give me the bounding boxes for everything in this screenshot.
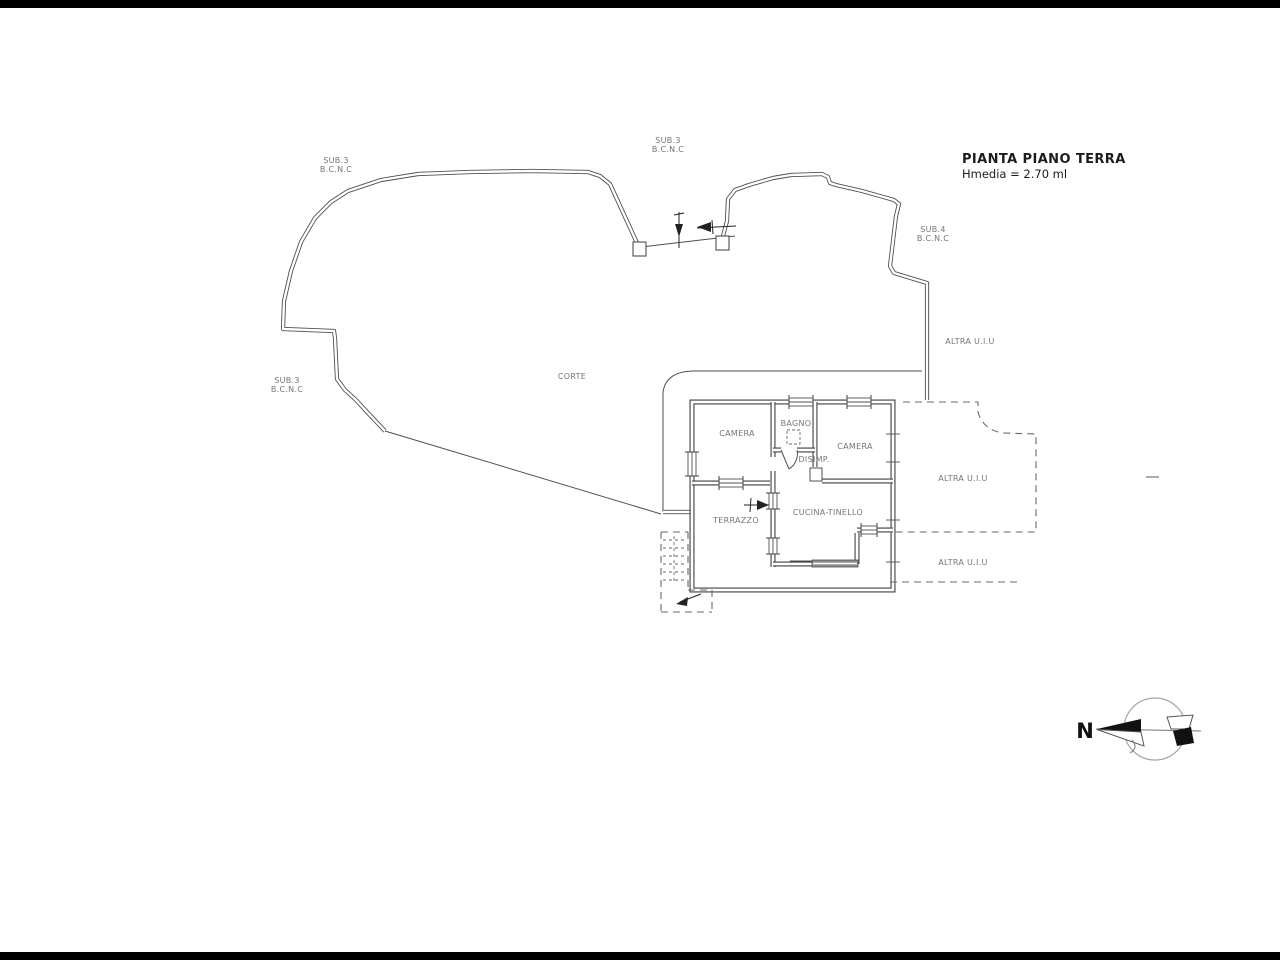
adjacent-area-upper [890, 402, 1036, 532]
staircase-steps [663, 536, 686, 584]
label-sub3-top-center-id: SUB.3 [655, 136, 681, 145]
gate-post-left [633, 242, 646, 256]
window-camera-left-side [685, 452, 699, 476]
gate-post-right [716, 236, 729, 250]
window-bagno-top [789, 395, 813, 409]
entrance-arrow-horizontal [697, 220, 736, 234]
plan-subtitle: Hmedia = 2.70 ml [962, 167, 1067, 181]
window-kitchen-upper [766, 493, 780, 509]
label-altra-middle: ALTRA U.I.U [938, 474, 987, 483]
door-leaf-bagno [781, 450, 789, 469]
compass-flag-outline [1167, 715, 1193, 729]
label-sub4-id: SUB.4 [920, 225, 946, 234]
label-corte: CORTE [558, 372, 586, 381]
terrace-entrance-arrow [744, 498, 769, 512]
label-sub3-top-center-class: B.C.N.C [652, 145, 684, 154]
staircase-arrow [676, 594, 701, 606]
north-label: N [1076, 719, 1094, 743]
label-bagno: BAGNO [781, 419, 812, 428]
courtyard-divider-line [663, 371, 922, 512]
compass: N [1076, 698, 1201, 760]
window-camera-right-top [847, 395, 871, 409]
plan-title: PIANTA PIANO TERRA [962, 152, 1126, 167]
entrance-gate [633, 212, 736, 256]
label-sub3-left-id: SUB.3 [274, 376, 300, 385]
courtyard-boundary [283, 171, 927, 514]
label-disimpegno: DISIMP. [798, 455, 829, 464]
window-kitchen-right [861, 523, 877, 537]
label-sub3-top-left-class: B.C.N.C [320, 165, 352, 174]
door-arc-bagno [789, 450, 797, 469]
floor-plan: N PIANTA PIANO TERRA Hmedia = 2.70 ml SU… [0, 0, 1280, 960]
label-sub3-left-class: B.C.N.C [271, 385, 303, 394]
label-camera-left: CAMERA [719, 429, 755, 438]
label-altra-upper: ALTRA U.I.U [945, 337, 994, 346]
staircase [661, 532, 712, 612]
bagno-fixture [787, 430, 800, 444]
plan-labels: PIANTA PIANO TERRA Hmedia = 2.70 ml SUB.… [271, 136, 1126, 567]
label-sub4-class: B.C.N.C [917, 234, 949, 243]
dashed-adjacent-areas [890, 402, 1159, 582]
courtyard-diagonal-edge [385, 431, 661, 514]
door-jog [810, 468, 822, 481]
window-kitchen-lower [766, 538, 780, 554]
label-camera-right: CAMERA [837, 442, 873, 451]
label-sub3-top-left-id: SUB.3 [323, 156, 349, 165]
label-terrazzo: TERRAZZO [712, 516, 759, 525]
label-altra-lower: ALTRA U.I.U [938, 558, 987, 567]
window-camera-left-bottom [719, 476, 743, 490]
label-cucina: CUCINA-TINELLO [793, 508, 863, 517]
compass-flag-filled [1173, 727, 1194, 746]
north-arrow-wing [1097, 730, 1144, 747]
